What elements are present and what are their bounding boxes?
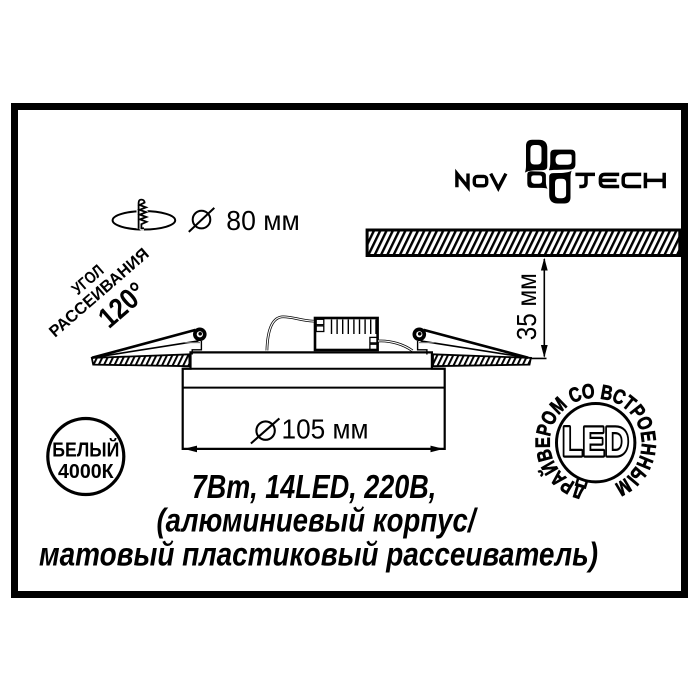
- svg-text:(алюминиевый корпус/: (алюминиевый корпус/: [157, 503, 479, 540]
- svg-text:БЕЛЫЙ: БЕЛЫЙ: [52, 438, 119, 462]
- svg-text:80 мм: 80 мм: [226, 205, 299, 236]
- svg-text:105 мм: 105 мм: [282, 413, 369, 444]
- svg-text:матовый пластиковый рассеивате: матовый пластиковый рассеиватель): [39, 536, 598, 573]
- svg-text:7Вm, 14LED, 220В,: 7Вm, 14LED, 220В,: [192, 469, 437, 506]
- svg-text:4000К: 4000К: [58, 460, 114, 483]
- svg-text:35 мм: 35 мм: [511, 273, 542, 340]
- svg-text:LED: LED: [562, 418, 629, 464]
